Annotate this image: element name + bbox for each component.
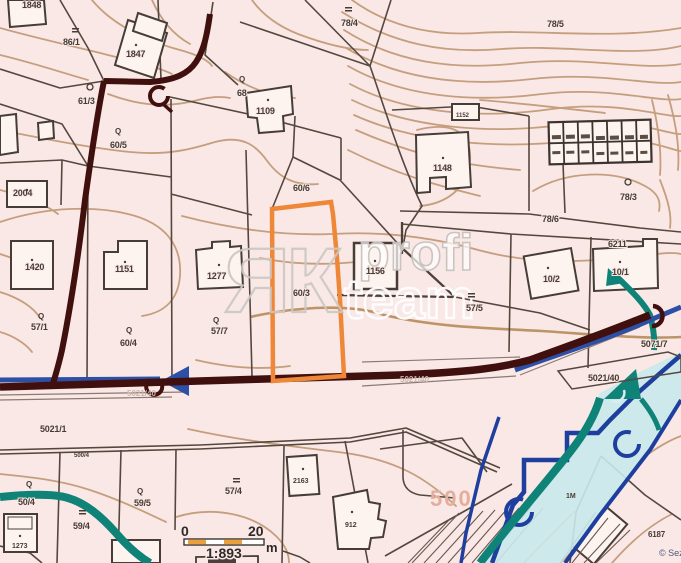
svg-text:500/4: 500/4	[74, 453, 90, 459]
svg-text:Q: Q	[126, 326, 132, 335]
svg-text:2004: 2004	[13, 188, 32, 198]
svg-text:5071/7: 5071/7	[641, 339, 668, 349]
svg-text:78/3: 78/3	[620, 192, 637, 202]
svg-text:1277: 1277	[207, 271, 226, 281]
svg-text:1848: 1848	[22, 0, 41, 10]
svg-text:2163: 2163	[293, 478, 309, 485]
svg-text:1151: 1151	[115, 264, 134, 274]
svg-text:1273: 1273	[12, 543, 28, 550]
svg-text:5021/40: 5021/40	[588, 373, 619, 383]
svg-text:68: 68	[237, 88, 247, 98]
svg-text:6211: 6211	[608, 239, 627, 249]
svg-text:1:893: 1:893	[206, 545, 242, 561]
svg-text:59/4: 59/4	[73, 521, 90, 531]
svg-text:team: team	[344, 267, 475, 330]
svg-text:1420: 1420	[25, 262, 44, 272]
svg-text:© Sez: © Sez	[659, 548, 681, 558]
svg-text:57/4: 57/4	[225, 486, 242, 496]
svg-text:1847: 1847	[126, 49, 145, 59]
svg-text:500: 500	[430, 486, 473, 511]
svg-text:1M: 1M	[566, 493, 576, 500]
svg-text:5021/40: 5021/40	[127, 389, 156, 398]
svg-text:1148: 1148	[433, 163, 452, 173]
svg-text:60/5: 60/5	[110, 140, 127, 150]
svg-text:60/6: 60/6	[293, 183, 310, 193]
svg-text:1156: 1156	[366, 266, 385, 276]
svg-text:Q: Q	[137, 487, 143, 496]
svg-text:Q: Q	[239, 75, 245, 84]
svg-text:59/5: 59/5	[134, 498, 151, 508]
svg-text:10/2: 10/2	[543, 274, 560, 284]
svg-text:m: m	[266, 540, 278, 555]
svg-text:57/1: 57/1	[31, 322, 48, 332]
svg-text:57/5: 57/5	[466, 303, 483, 313]
svg-text:5021/1: 5021/1	[40, 424, 67, 434]
svg-text:78/6: 78/6	[542, 214, 559, 224]
svg-text:20: 20	[248, 523, 264, 539]
svg-text:78/5: 78/5	[547, 19, 564, 29]
svg-text:78/4: 78/4	[341, 18, 358, 28]
svg-text:Q: Q	[213, 316, 219, 325]
svg-text:Q: Q	[26, 480, 32, 489]
svg-text:0: 0	[181, 523, 189, 539]
svg-text:10/1: 10/1	[612, 267, 629, 277]
svg-text:61/3: 61/3	[78, 96, 95, 106]
svg-text:50/4: 50/4	[18, 497, 35, 507]
svg-text:86/1: 86/1	[63, 37, 80, 47]
svg-text:6187: 6187	[648, 530, 666, 539]
svg-text:1109: 1109	[256, 106, 275, 116]
svg-text:ЯК: ЯК	[224, 230, 343, 332]
svg-text:60/4: 60/4	[120, 338, 137, 348]
svg-text:5021/40: 5021/40	[400, 375, 429, 384]
svg-text:60/3: 60/3	[293, 288, 310, 298]
svg-text:Q: Q	[115, 127, 121, 136]
svg-text:1152: 1152	[456, 113, 470, 119]
svg-text:Q: Q	[38, 312, 44, 321]
svg-text:912: 912	[345, 522, 357, 529]
svg-text:57/7: 57/7	[211, 326, 228, 336]
